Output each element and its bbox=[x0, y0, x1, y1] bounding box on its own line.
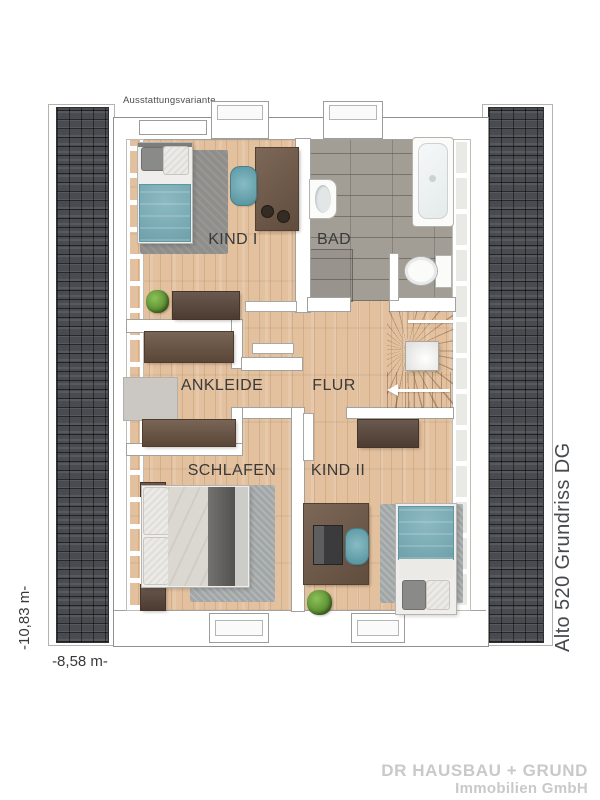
ankleide-wardrobe-2 bbox=[143, 420, 235, 446]
kind1-duvet bbox=[140, 185, 190, 241]
dimension-height: -10,83 m- bbox=[16, 578, 33, 650]
window-bottom-kind2 bbox=[352, 614, 404, 642]
stair-newel bbox=[406, 342, 438, 370]
branding-subtitle: Immobilien GmbH bbox=[288, 781, 588, 798]
wall-bad-south-a bbox=[308, 298, 350, 311]
stair-railing bbox=[408, 320, 453, 323]
dormer-window-1 bbox=[212, 102, 268, 138]
kind2-sheet-band bbox=[399, 559, 453, 579]
wall-bottom bbox=[114, 610, 486, 645]
wall-schlafen-kind2 bbox=[292, 408, 304, 611]
bathtub-icon bbox=[413, 138, 453, 226]
branding: DR HAUSBAU + GRUND Immobilien GmbH bbox=[288, 762, 588, 797]
dormer-window-2 bbox=[324, 102, 382, 138]
schlafen-runner bbox=[208, 487, 235, 586]
door-bad bbox=[390, 254, 398, 300]
window-bottom-schlafen-sash bbox=[216, 621, 262, 635]
branding-company: DR HAUSBAU + GRUND bbox=[288, 762, 588, 781]
label-ankleide: ANKLEIDE bbox=[181, 377, 263, 395]
label-kind1: KIND I bbox=[208, 231, 258, 249]
kind1-chair bbox=[231, 167, 256, 205]
door-kind1 bbox=[246, 302, 296, 311]
window-bottom-kind2-sash bbox=[358, 621, 398, 635]
kind2-dresser bbox=[358, 420, 418, 447]
kind2-plant-icon bbox=[307, 590, 332, 615]
wall-stairs-kind2 bbox=[347, 408, 453, 418]
wall-right bbox=[470, 139, 487, 610]
kind1-bed bbox=[138, 143, 192, 243]
schlafen-bed bbox=[142, 486, 249, 587]
kind1-sideboard bbox=[173, 292, 239, 319]
roof-tiles-right bbox=[488, 107, 544, 643]
roof-strip-right bbox=[482, 104, 553, 646]
wall-ankleide-v1 bbox=[232, 320, 242, 368]
floorplan-page: Ausstattungsvariante bbox=[0, 0, 600, 800]
wall-left bbox=[114, 139, 128, 610]
wall-kind1-bad bbox=[296, 139, 310, 312]
window-top-left bbox=[140, 121, 206, 134]
bathtub-drain bbox=[429, 175, 436, 182]
kind2-bed bbox=[396, 504, 456, 614]
toilet-icon bbox=[405, 257, 437, 285]
wall-ankleide-h1 bbox=[242, 358, 302, 370]
shower-area bbox=[304, 250, 352, 301]
stair-direction-line bbox=[398, 389, 450, 392]
kind2-chair bbox=[346, 529, 368, 564]
schlafen-duvet bbox=[168, 487, 210, 586]
kind2-laptop-icon bbox=[314, 526, 342, 564]
plan-title: Alto 520 Grundriss DG bbox=[552, 424, 575, 652]
ankleide-carpet bbox=[124, 378, 177, 420]
kind1-desk-item-1 bbox=[262, 206, 273, 217]
dimension-width: -8,58 m- bbox=[40, 653, 120, 670]
wall-kind1-ankleide bbox=[127, 320, 240, 332]
kind1-plant-icon bbox=[146, 290, 169, 313]
ankleide-wardrobe-1 bbox=[145, 332, 233, 362]
label-schlafen: SCHLAFEN bbox=[188, 462, 277, 480]
schlafen-nightstand-2 bbox=[141, 585, 165, 610]
variant-note: Ausstattungsvariante bbox=[123, 95, 216, 106]
label-kind2: KIND II bbox=[311, 462, 365, 480]
kind2-duvet bbox=[399, 507, 453, 559]
bathroom-sink-icon bbox=[310, 180, 336, 218]
kind1-desk bbox=[256, 148, 298, 230]
schlafen-foot-band bbox=[235, 487, 248, 586]
wall-bad-south-b bbox=[390, 298, 455, 311]
dormer-window-2-sash bbox=[330, 106, 376, 119]
kind1-desk-item-2 bbox=[278, 211, 289, 222]
kind1-pillow-white bbox=[164, 147, 188, 174]
toilet-tank bbox=[436, 256, 451, 287]
window-bottom-schlafen bbox=[210, 614, 268, 642]
stair-direction-arrow bbox=[387, 384, 398, 396]
schlafen-pillow-2 bbox=[144, 538, 168, 584]
label-flur: FLUR bbox=[312, 377, 355, 395]
sink-basin bbox=[315, 185, 331, 213]
kind2-pillow-gray bbox=[403, 581, 425, 609]
schlafen-pillow-1 bbox=[144, 488, 168, 534]
kind1-pillow-gray bbox=[142, 148, 164, 170]
label-bad: BAD bbox=[317, 231, 351, 249]
dormer-window-1-sash bbox=[218, 106, 262, 119]
staircase bbox=[387, 311, 453, 408]
door-ankleide bbox=[253, 344, 293, 353]
roof-strip-left bbox=[48, 104, 115, 646]
kind2-pillow-white bbox=[427, 581, 449, 609]
door-kind2 bbox=[304, 414, 313, 460]
roof-tiles-left bbox=[56, 107, 109, 643]
